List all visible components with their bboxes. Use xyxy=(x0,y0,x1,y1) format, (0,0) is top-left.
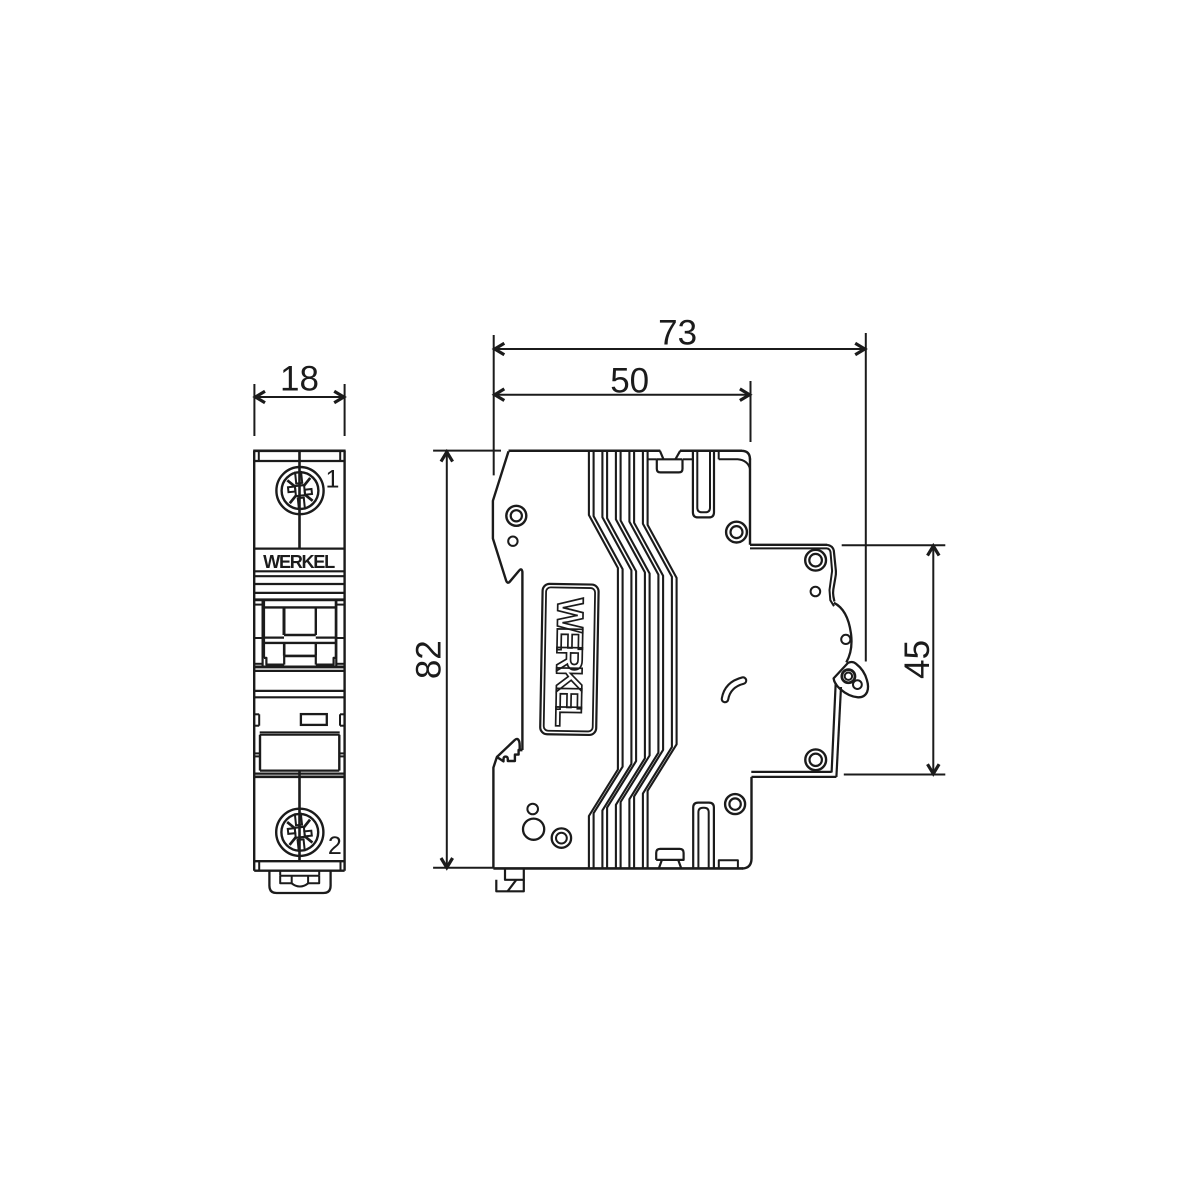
svg-text:73: 73 xyxy=(658,314,697,353)
svg-text:18: 18 xyxy=(280,360,319,399)
svg-text:2: 2 xyxy=(328,832,342,860)
svg-text:WERKEL: WERKEL xyxy=(548,597,591,726)
svg-text:45: 45 xyxy=(898,640,937,679)
svg-text:WERKEL: WERKEL xyxy=(263,552,335,572)
svg-text:82: 82 xyxy=(410,640,449,679)
svg-text:1: 1 xyxy=(326,466,340,494)
